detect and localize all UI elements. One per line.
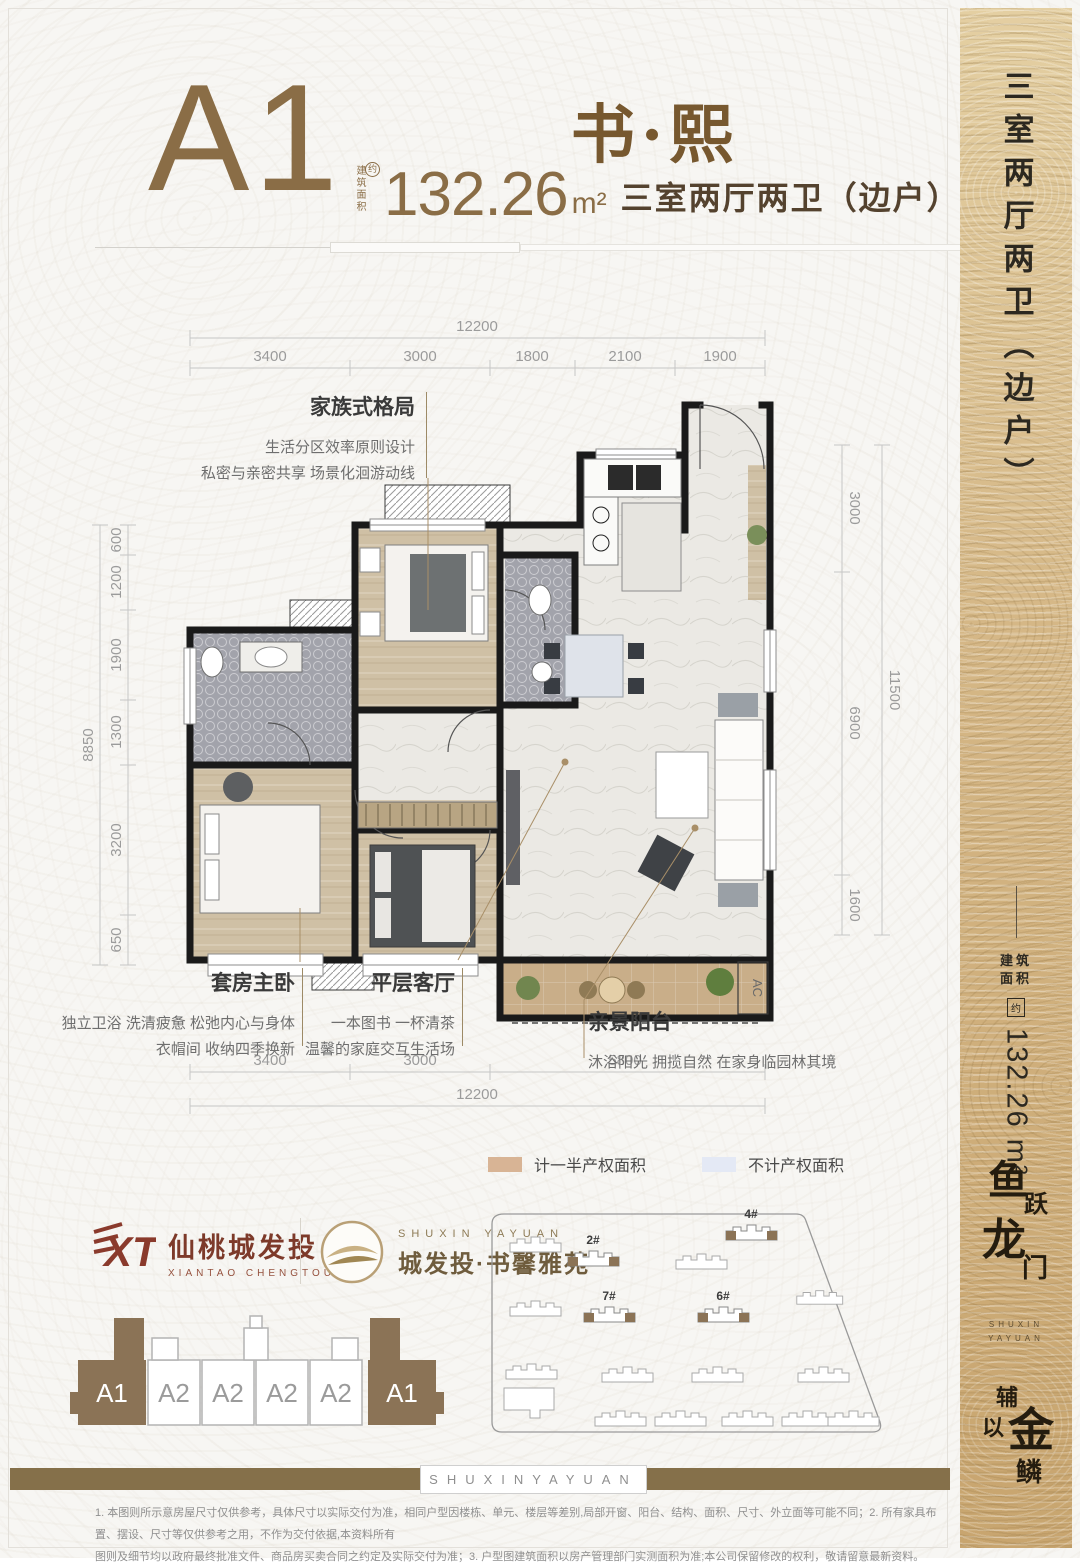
dev-mark-text: XT bbox=[102, 1228, 156, 1275]
header-divider-deco bbox=[330, 242, 520, 253]
svg-text:3000: 3000 bbox=[846, 491, 863, 524]
unit-code: A1 bbox=[148, 62, 342, 214]
footer-bar: SHUXINYAYUAN bbox=[10, 1468, 950, 1490]
developer-logo-mark: XT bbox=[92, 1216, 156, 1278]
legend: 计一半产权面积 不计产权面积 bbox=[488, 1152, 844, 1176]
dining-table bbox=[565, 635, 623, 697]
svg-text:3200: 3200 bbox=[108, 823, 125, 856]
legend-half-label: 计一半产权面积 bbox=[534, 1152, 646, 1176]
area-approx-badge: 约 bbox=[365, 162, 380, 177]
anno-master: 套房主卧 独立卫浴 洗清疲惫 松弛内心与身体 衣帽间 收纳四季换新 bbox=[60, 966, 295, 1063]
sidebar-area-approx: 约 bbox=[1007, 998, 1025, 1017]
sidebar-en-line2: YAYUAN bbox=[988, 1334, 1044, 1343]
anno-living-rule bbox=[462, 968, 463, 1046]
anno-balcony-title: 亲景阳台 bbox=[588, 1005, 888, 1042]
coffee-table bbox=[656, 752, 708, 818]
svg-text:A2: A2 bbox=[320, 1378, 352, 1408]
anno-family-rule bbox=[426, 392, 427, 478]
siteplan-label-4: 4# bbox=[744, 1207, 758, 1221]
dim-bottom-total: 12200 bbox=[456, 1086, 498, 1103]
siteplan-label-2: 2# bbox=[586, 1233, 600, 1247]
developer-logo-text: 仙桃城发投 XIANTAO CHENGTOU bbox=[168, 1226, 335, 1279]
header-divider-deco bbox=[520, 244, 1000, 251]
ac-label: AC bbox=[750, 979, 765, 997]
svg-text:1900: 1900 bbox=[703, 348, 736, 365]
svg-text:650: 650 bbox=[108, 927, 125, 952]
legend-half-swatch bbox=[488, 1157, 522, 1172]
disclaimer-line1: 1. 本图则所示意房屋尺寸仅供参考，具体尺寸以实际交付为准，相同户型因楼栋、单元… bbox=[95, 1502, 940, 1546]
siteplan-label-7: 7# bbox=[602, 1289, 616, 1303]
svg-text:1600: 1600 bbox=[846, 888, 863, 921]
sidebar-panel: 三室两厅两卫（边户） 建筑 面积 约 132.26 m² 鱼 跃 龙 门 SHU… bbox=[960, 8, 1072, 1548]
logo-divider bbox=[300, 1218, 301, 1284]
svg-text:600: 600 bbox=[108, 527, 125, 552]
svg-text:A2: A2 bbox=[266, 1378, 298, 1408]
strip-unit-a1-right: A1 bbox=[386, 1378, 418, 1408]
strip-unit-a1: A1 bbox=[96, 1378, 128, 1408]
plant bbox=[747, 525, 767, 545]
sidebar-area-label: 建筑 面积 bbox=[1000, 952, 1032, 988]
svg-text:1200: 1200 bbox=[108, 565, 125, 598]
legend-none-swatch bbox=[702, 1157, 736, 1172]
slogan-char: 鱼 bbox=[988, 1148, 1028, 1206]
developer-subtitle: XIANTAO CHENGTOU bbox=[168, 1268, 335, 1279]
svg-text:3000: 3000 bbox=[403, 348, 436, 365]
disclaimer: 1. 本图则所示意房屋尺寸仅供参考，具体尺寸以实际交付为准，相同户型因楼栋、单元… bbox=[95, 1502, 940, 1568]
dim-top-total: 12200 bbox=[456, 318, 498, 335]
area-value: 132.26 bbox=[384, 167, 568, 223]
layout-text: 三室两厅两卫（边户） bbox=[621, 173, 961, 219]
anno-family: 家族式格局 生活分区效率原则设计 私密与亲密共享 场景化洄游动线 bbox=[180, 390, 415, 487]
siteplan-label-6: 6# bbox=[716, 1289, 730, 1303]
siteplan: 2# 4# 7# 6# bbox=[480, 1198, 910, 1453]
area-unit: m² bbox=[572, 187, 607, 221]
svg-text:A2: A2 bbox=[158, 1378, 190, 1408]
project-emblem bbox=[318, 1218, 386, 1286]
anno-family-title: 家族式格局 bbox=[180, 390, 415, 427]
chair bbox=[223, 772, 253, 802]
anno-living: 平层客厅 一本图书 一杯清茶 温馨的家庭交互生活场 bbox=[280, 966, 455, 1063]
building-unit-strip: A1 A2 A2 A2 A2 A1 bbox=[68, 1300, 458, 1450]
footer-bar-label: SHUXINYAYUAN bbox=[420, 1465, 647, 1494]
svg-text:1300: 1300 bbox=[108, 715, 125, 748]
disclaimer-line2: 图则及细节均以政府最终批准文件、商品房买卖合同之约定及实际交付为准；3. 户型图… bbox=[95, 1546, 940, 1568]
balcony-table bbox=[599, 977, 625, 1003]
svg-text:A2: A2 bbox=[212, 1378, 244, 1408]
svg-text:2100: 2100 bbox=[608, 348, 641, 365]
svg-text:6900: 6900 bbox=[846, 706, 863, 739]
plant bbox=[706, 968, 734, 996]
sidebar-divider bbox=[1016, 886, 1017, 938]
area-label: 建筑面积 bbox=[352, 165, 367, 217]
svg-text:1800: 1800 bbox=[515, 348, 548, 365]
sidebar-en-line1: SHUXIN bbox=[989, 1320, 1043, 1329]
plant bbox=[516, 976, 540, 1000]
anno-balcony: 亲景阳台 沐浴阳光 拥揽自然 在家身临园林其境 bbox=[588, 1005, 888, 1076]
svg-text:3400: 3400 bbox=[253, 348, 286, 365]
developer-name: 仙桃城发投 bbox=[168, 1226, 335, 1265]
dim-right-total: 11500 bbox=[886, 670, 903, 711]
anno-master-title: 套房主卧 bbox=[60, 966, 295, 1003]
svg-text:1900: 1900 bbox=[108, 638, 125, 671]
poster-page: A1 书·熙 建筑面积 约 132.26 m² 三室两厅两卫（边户） bbox=[0, 0, 1080, 1558]
dim-left-total: 8850 bbox=[80, 728, 97, 761]
anno-living-title: 平层客厅 bbox=[280, 966, 455, 1003]
header-area-row: 建筑面积 约 132.26 m² 三室两厅两卫（边户） bbox=[352, 162, 961, 223]
legend-none-label: 不计产权面积 bbox=[748, 1152, 844, 1176]
sidebar-title: 三室两厅两卫（边户） bbox=[994, 70, 1039, 500]
